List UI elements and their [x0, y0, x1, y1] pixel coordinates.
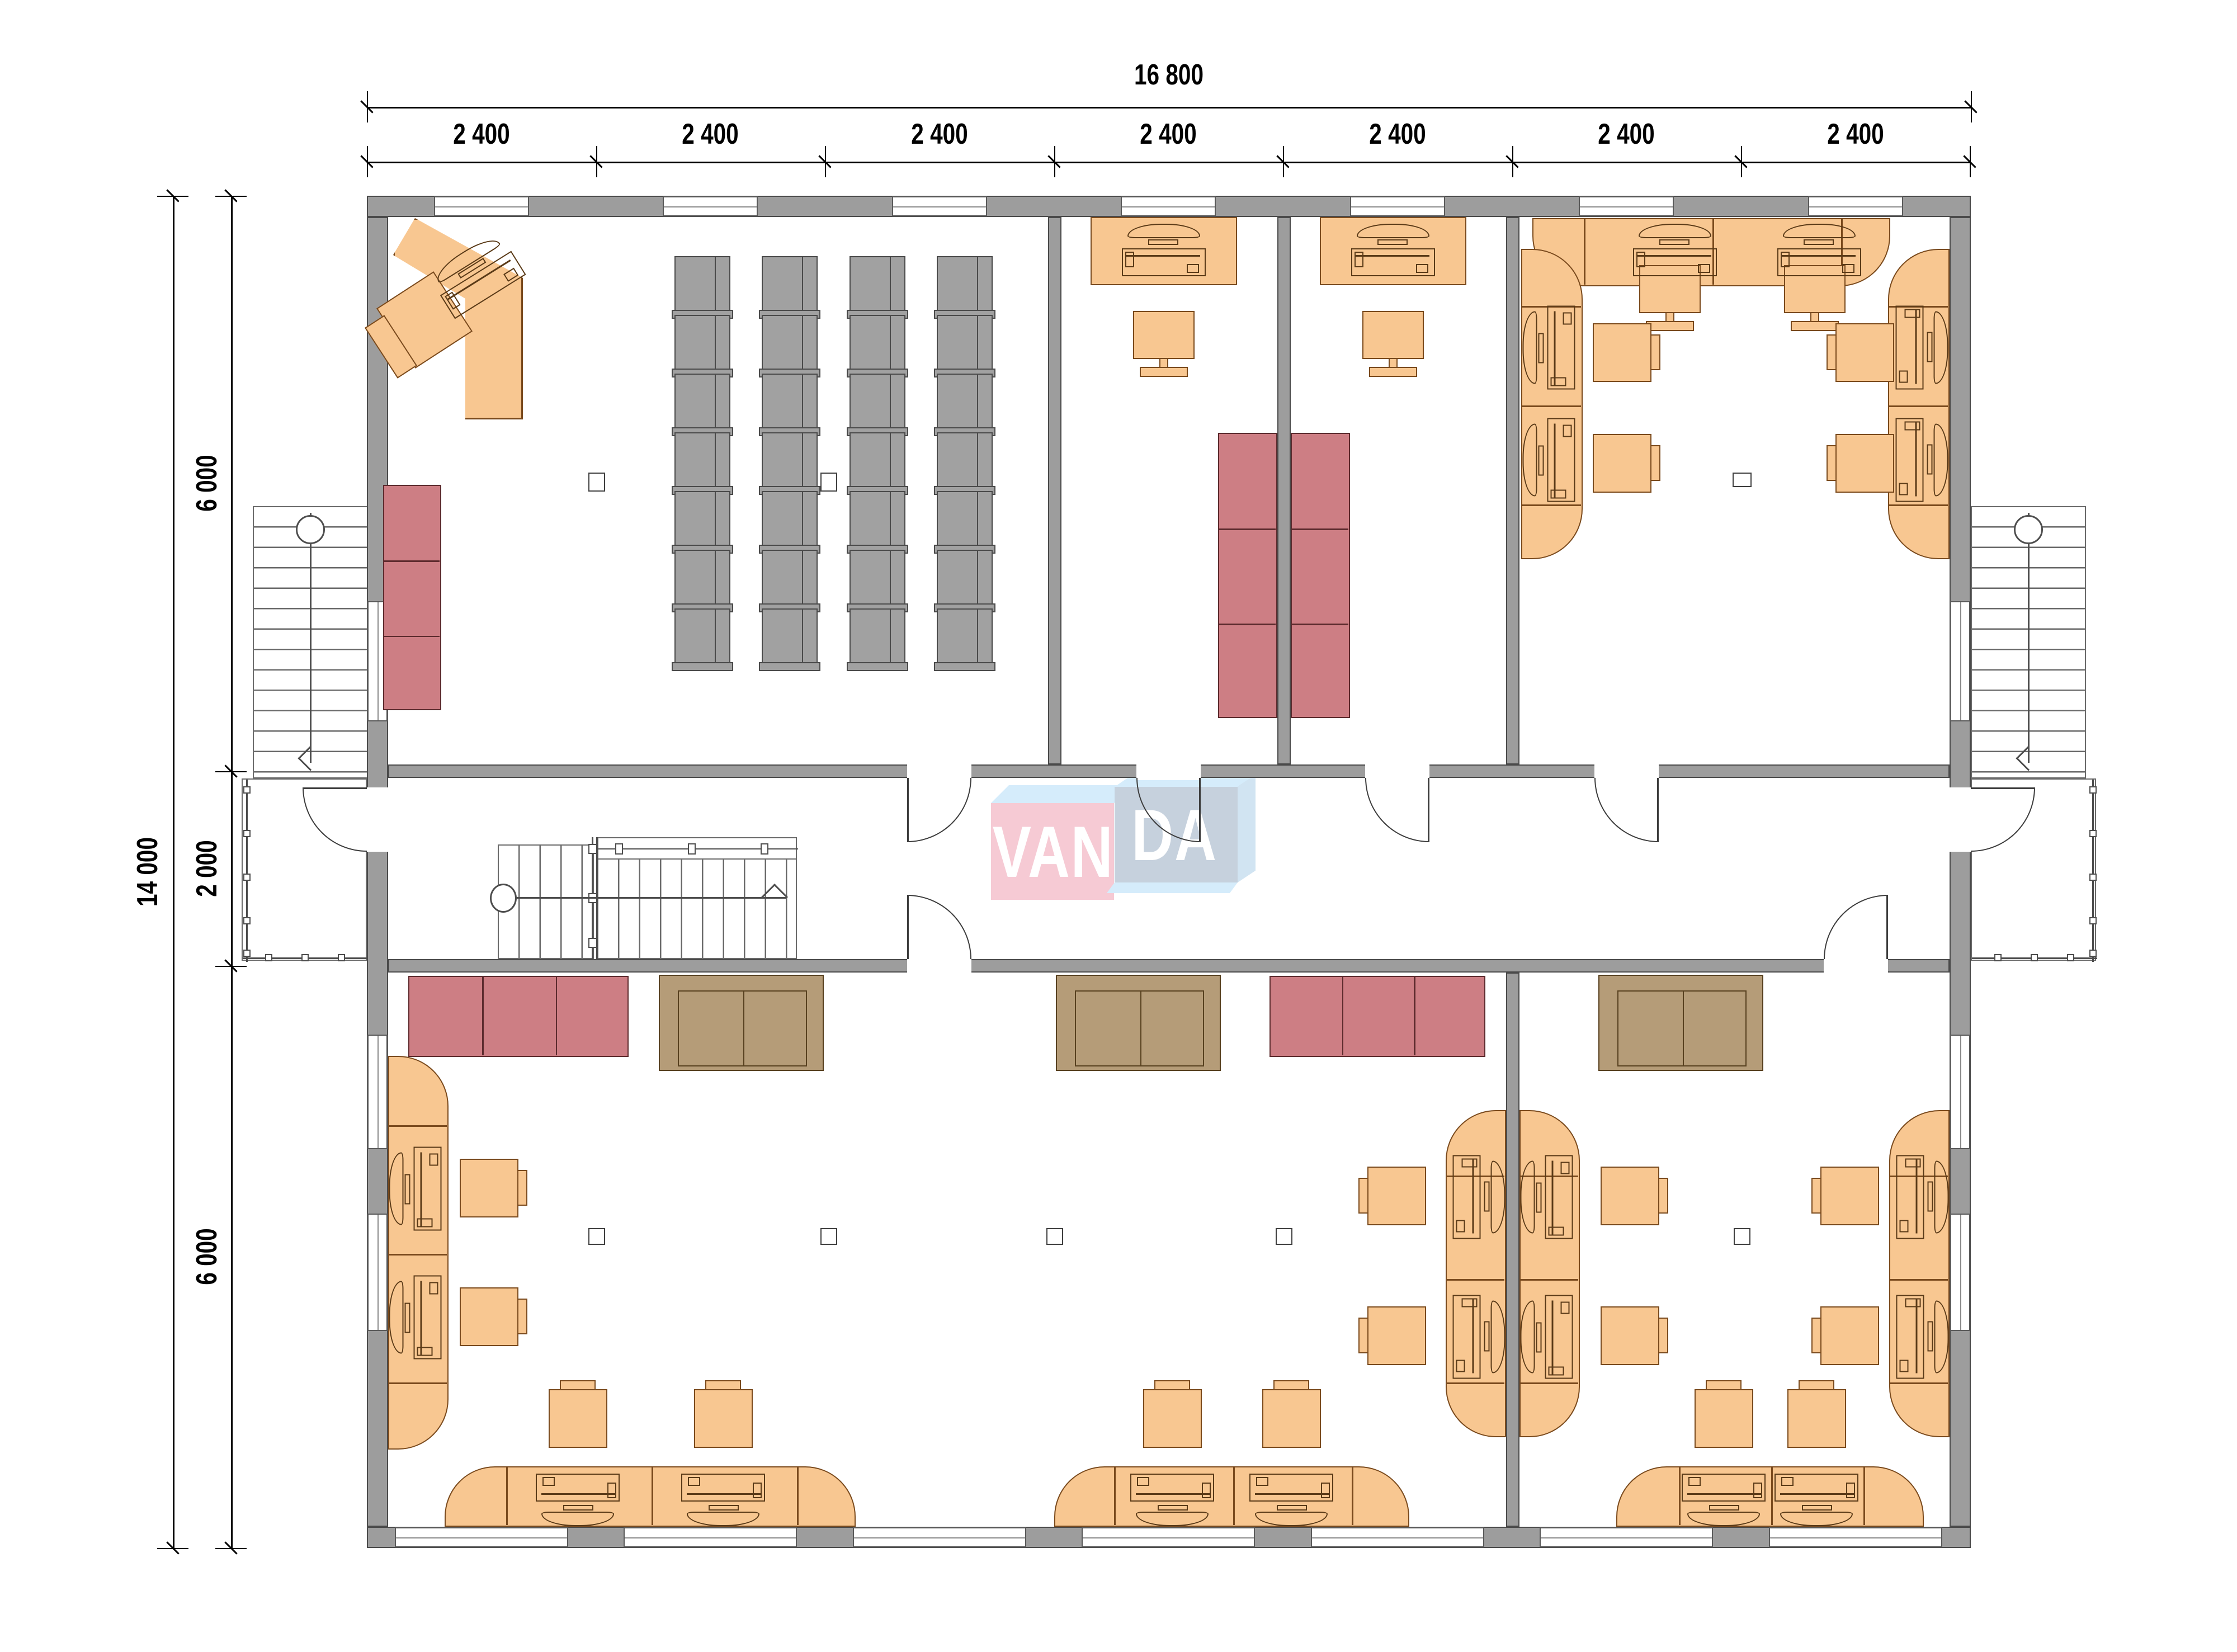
- cabinet-divider: [1342, 977, 1344, 1055]
- keyboard-keys-icon: [1552, 1301, 1554, 1375]
- chair-seat: [1601, 1167, 1659, 1225]
- window-glazing: [893, 206, 986, 207]
- monitor-stand-icon: [1277, 1505, 1307, 1511]
- keyboard-keys-icon: [1780, 1493, 1854, 1495]
- chair-seat: [762, 374, 818, 428]
- cabinet: [408, 976, 629, 1057]
- chair-arm-line: [890, 316, 891, 369]
- door-arc: [907, 778, 971, 842]
- system-unit-icon: [1905, 1299, 1921, 1308]
- computer-workstation: [1447, 1155, 1506, 1239]
- monitor-stand-icon: [1484, 1182, 1490, 1212]
- stair-start-circle: [2014, 515, 2043, 544]
- sofa-cushions: [1617, 990, 1747, 1066]
- window: [1950, 1214, 1970, 1331]
- chair-seat: [1835, 434, 1894, 493]
- door-arc: [1971, 787, 2035, 852]
- mouse-icon: [1416, 264, 1428, 273]
- office-chair: [460, 1159, 527, 1226]
- window-glazing: [1809, 206, 1902, 207]
- chair-arm-line: [802, 551, 803, 603]
- keyboard-keys-icon: [541, 1493, 615, 1495]
- classroom-chair: [937, 256, 1002, 321]
- monitor-stand-icon: [1538, 446, 1544, 476]
- railing-post: [243, 830, 251, 837]
- chair-seat: [1133, 311, 1195, 359]
- mouse-icon: [688, 1477, 700, 1486]
- chair-base: [1140, 367, 1188, 377]
- chair-arm-line: [977, 433, 978, 486]
- mouse-icon: [1900, 1360, 1909, 1372]
- classroom-chair: [674, 550, 739, 615]
- chair-seat: [937, 550, 993, 605]
- railing-post: [301, 954, 309, 961]
- window: [434, 196, 529, 216]
- railing-post: [243, 950, 251, 957]
- dimension-line: [173, 196, 174, 1548]
- chair-seat: [762, 491, 818, 546]
- monitor-stand-icon: [1927, 332, 1933, 362]
- door-leaf: [1657, 778, 1659, 842]
- classroom-chair: [762, 315, 827, 380]
- sofa-cushions: [678, 990, 807, 1066]
- monitor-icon: [1934, 424, 1948, 497]
- keyboard-keys-icon: [1916, 1160, 1918, 1234]
- office-chair: [1695, 1380, 1762, 1448]
- classroom-chair: [674, 432, 739, 497]
- desk-divider: [1863, 1467, 1865, 1525]
- system-unit-icon: [607, 1483, 616, 1498]
- chair-arm-line: [715, 316, 716, 369]
- monitor-icon: [1127, 224, 1200, 238]
- stair-flight-upper: [597, 858, 797, 959]
- desk-divider: [797, 1467, 799, 1525]
- monitor-icon: [1934, 1161, 1949, 1234]
- chair-seat: [1787, 1389, 1846, 1448]
- logo-text-left: VAN: [993, 810, 1114, 894]
- monitor-stand-icon: [1536, 1323, 1542, 1353]
- window: [1808, 196, 1903, 216]
- computer-workstation: [1521, 1155, 1579, 1239]
- keyboard-keys-icon: [1356, 255, 1429, 257]
- window-glazing: [1083, 1537, 1254, 1538]
- office-chair: [694, 1380, 762, 1448]
- system-unit-icon: [753, 1483, 762, 1498]
- chair-seat: [674, 315, 730, 370]
- chair-arm-line: [977, 610, 978, 662]
- computer-workstation: [1775, 1467, 1858, 1526]
- railing-post: [761, 843, 768, 855]
- railing-post: [688, 843, 696, 855]
- keyboard-keys-icon: [1782, 255, 1856, 257]
- chair-arm-line: [890, 551, 891, 603]
- window: [1769, 1527, 1942, 1547]
- chair-seat: [850, 608, 905, 663]
- chair-seat: [937, 256, 993, 311]
- desk-divider: [1114, 1467, 1116, 1525]
- mouse-icon: [1899, 483, 1908, 495]
- chair-seat: [762, 256, 818, 311]
- monitor-stand-icon: [1536, 1183, 1542, 1213]
- sofa: [659, 975, 824, 1071]
- dimension-label: 16 800: [1134, 58, 1204, 92]
- window: [663, 196, 758, 216]
- desk-divider: [506, 1467, 508, 1525]
- mouse-icon: [1561, 1302, 1570, 1314]
- computer-workstation: [536, 1467, 620, 1526]
- chair-back-bar: [672, 662, 733, 671]
- mouse-icon: [1563, 425, 1572, 437]
- cabinet: [1218, 433, 1277, 718]
- chair-back: [1650, 334, 1660, 370]
- classroom-chair: [937, 374, 1002, 438]
- door-opening: [1824, 957, 1888, 975]
- cabinet-divider: [1414, 977, 1415, 1055]
- chair-seat: [674, 550, 730, 605]
- monitor-icon: [1687, 1512, 1760, 1526]
- classroom-chair: [937, 432, 1002, 497]
- sofa-cushion-divider: [1140, 992, 1142, 1065]
- door-leaf: [1428, 778, 1429, 842]
- mouse-icon: [1900, 1220, 1909, 1233]
- mouse-icon: [1842, 264, 1854, 273]
- structural-column: [1733, 473, 1752, 487]
- chair-arm-line: [802, 375, 803, 427]
- window-glazing: [1312, 1537, 1483, 1538]
- desk-divider: [1521, 1382, 1578, 1384]
- system-unit-icon: [1636, 252, 1645, 267]
- monitor-stand-icon: [1804, 239, 1834, 245]
- monitor-stand-icon: [1538, 333, 1544, 364]
- system-unit-icon: [1905, 309, 1920, 318]
- chair-seat: [1601, 1306, 1659, 1365]
- window-glazing: [1960, 602, 1961, 720]
- chair-arm-line: [715, 551, 716, 603]
- chair-seat: [937, 608, 993, 663]
- chair-seat: [937, 491, 993, 546]
- door-opening: [907, 957, 971, 975]
- door-arc: [907, 895, 971, 959]
- wall: [1506, 217, 1519, 764]
- desk-divider: [1233, 1467, 1235, 1525]
- chair-seat: [1820, 1167, 1879, 1225]
- classroom-chair: [674, 608, 739, 673]
- computer-workstation: [1447, 1295, 1506, 1379]
- chair-seat: [674, 432, 730, 487]
- keyboard-keys-icon: [1916, 1300, 1918, 1373]
- dimension-line: [367, 107, 1971, 108]
- window: [1121, 196, 1216, 216]
- desk: [445, 1466, 856, 1527]
- chair-arm-line: [715, 433, 716, 486]
- wall: [388, 959, 1950, 973]
- window: [1311, 1527, 1484, 1547]
- railing-post: [588, 844, 597, 854]
- window-glazing: [1960, 1036, 1961, 1148]
- system-unit-icon: [1202, 1483, 1211, 1498]
- chair-seat: [937, 374, 993, 428]
- cabinet-divider: [384, 636, 440, 638]
- classroom-chair: [850, 432, 914, 497]
- desk-divider: [1890, 1382, 1948, 1384]
- mouse-icon: [1137, 1477, 1149, 1486]
- desk-divider: [1679, 1467, 1681, 1525]
- keyboard-keys-icon: [687, 1493, 761, 1495]
- system-unit-icon: [1355, 252, 1363, 267]
- railing-post: [243, 874, 251, 881]
- logo-bevel: [991, 785, 1132, 803]
- desk: [1054, 1466, 1409, 1527]
- monitor-stand-icon: [405, 1174, 410, 1205]
- window: [367, 1035, 388, 1149]
- structural-column: [820, 473, 837, 492]
- chair-seat: [850, 432, 905, 487]
- monitor-icon: [1521, 1301, 1535, 1373]
- sofa: [1598, 975, 1763, 1071]
- cabinet-divider: [1219, 528, 1276, 530]
- door-swing: [1365, 778, 1429, 842]
- monitor-stand-icon: [1928, 1182, 1933, 1212]
- desk-divider: [1584, 219, 1585, 285]
- window: [853, 1527, 1026, 1547]
- desk-divider: [389, 1125, 447, 1127]
- monitor-stand-icon: [1802, 1505, 1832, 1511]
- office-chair: [1827, 323, 1894, 391]
- cabinet-divider: [1219, 624, 1276, 625]
- stair-start-circle: [296, 515, 325, 544]
- dimension-label: 14 000: [131, 837, 164, 907]
- office-chair: [460, 1287, 527, 1355]
- monitor-stand-icon: [1659, 239, 1689, 245]
- dimension-label: 6 000: [190, 1228, 224, 1285]
- computer-workstation: [1890, 418, 1948, 502]
- chair-back: [1650, 445, 1660, 481]
- door-swing: [1824, 895, 1888, 959]
- chair-seat: [762, 550, 818, 605]
- chair-seat: [1835, 323, 1894, 382]
- computer-workstation: [1122, 224, 1206, 282]
- chair-seat: [762, 432, 818, 487]
- chair-seat: [1820, 1306, 1879, 1365]
- system-unit-icon: [417, 1347, 433, 1356]
- cabinet: [1291, 433, 1350, 718]
- window-glazing: [1541, 1537, 1712, 1538]
- classroom-chair: [937, 608, 1002, 673]
- monitor-stand-icon: [1709, 1505, 1739, 1511]
- cabinet: [1269, 976, 1485, 1057]
- window-glazing: [377, 1215, 379, 1330]
- chair-back-bar: [759, 662, 820, 671]
- cabinet: [383, 485, 441, 710]
- railing-post: [2031, 954, 2038, 961]
- monitor-stand-icon: [1927, 445, 1933, 475]
- railing-post: [2067, 954, 2074, 961]
- computer-workstation: [1682, 1467, 1766, 1526]
- computer-workstation: [1130, 1467, 1214, 1526]
- desk-divider: [652, 1467, 653, 1525]
- chair-arm-line: [977, 257, 978, 310]
- computer-workstation: [1890, 1155, 1949, 1239]
- office-chair: [1593, 434, 1660, 502]
- monitor-icon: [1934, 1301, 1949, 1373]
- classroom-chair: [762, 374, 827, 438]
- chair-seat: [674, 374, 730, 428]
- desk: [1616, 1466, 1924, 1527]
- desk-divider: [389, 1254, 447, 1255]
- window-glazing: [377, 1036, 379, 1148]
- dimension-label: 2 400: [682, 117, 739, 151]
- monitor-stand-icon: [1928, 1321, 1933, 1352]
- mouse-icon: [1187, 264, 1199, 273]
- system-unit-icon: [417, 1219, 433, 1228]
- structural-column: [1276, 1228, 1292, 1245]
- window-glazing: [435, 206, 528, 207]
- dimension-label: 2 000: [190, 840, 224, 897]
- chair-back-bar: [934, 662, 995, 671]
- window: [1540, 1527, 1713, 1547]
- window: [624, 1527, 797, 1547]
- chair-seat: [549, 1389, 607, 1448]
- mouse-icon: [430, 1154, 438, 1166]
- door-swing: [1971, 787, 2035, 852]
- monitor-stand-icon: [1158, 1505, 1188, 1511]
- monitor-icon: [1491, 1161, 1506, 1234]
- monitor-icon: [1357, 224, 1429, 238]
- chair-arm-line: [890, 433, 891, 486]
- chair-seat: [850, 374, 905, 428]
- chair-back: [1658, 1178, 1668, 1214]
- monitor-stand-icon: [405, 1303, 410, 1333]
- railing-post: [2089, 830, 2097, 837]
- interior-stairs: [487, 809, 811, 960]
- logo-bevel: [1238, 775, 1256, 882]
- window: [367, 1214, 388, 1331]
- computer-workstation: [1890, 306, 1948, 390]
- chair-seat: [937, 315, 993, 370]
- chair-arm-line: [977, 551, 978, 603]
- dimension-label: 2 400: [1140, 117, 1197, 151]
- railing-post: [338, 954, 345, 961]
- chair-arm-line: [977, 492, 978, 545]
- system-unit-icon: [1846, 1483, 1855, 1498]
- cabinet-divider: [1292, 624, 1348, 625]
- monitor-icon: [1783, 224, 1856, 238]
- mouse-icon: [1698, 264, 1710, 273]
- chair-seat: [850, 315, 905, 370]
- computer-workstation: [1521, 1295, 1579, 1379]
- door-opening: [1947, 787, 1973, 852]
- chair-arm-line: [802, 316, 803, 369]
- door-swing: [303, 787, 367, 852]
- monitor-icon: [389, 1281, 404, 1354]
- monitor-icon: [389, 1153, 404, 1225]
- structural-column: [1046, 1228, 1063, 1245]
- monitor-icon: [687, 1512, 759, 1526]
- dimension-line: [367, 162, 1971, 163]
- mouse-icon: [542, 1477, 555, 1486]
- computer-workstation: [1351, 224, 1435, 282]
- railing-post: [265, 954, 272, 961]
- stair-start-circle: [490, 884, 517, 913]
- railing-post: [615, 843, 623, 855]
- chair-seat: [937, 432, 993, 487]
- mouse-icon: [1256, 1477, 1268, 1486]
- chair-arm-line: [890, 492, 891, 545]
- computer-workstation: [389, 1276, 448, 1360]
- desk-divider: [389, 1382, 447, 1384]
- monitor-icon: [1639, 224, 1711, 238]
- monitor-icon: [1491, 1301, 1506, 1373]
- door-arc: [1594, 778, 1659, 842]
- railing-post: [1994, 954, 2002, 961]
- office-chair: [549, 1380, 616, 1448]
- chair-seat: [1695, 1389, 1753, 1448]
- desk-divider: [1890, 1279, 1948, 1281]
- desk-divider: [1352, 1467, 1353, 1525]
- chair-base: [1369, 367, 1417, 377]
- window-glazing: [1122, 206, 1215, 207]
- monitor-icon: [1523, 311, 1537, 384]
- classroom-chair: [850, 374, 914, 438]
- door-leaf: [1971, 787, 2035, 789]
- window: [1082, 1527, 1255, 1547]
- chair-arm-line: [802, 610, 803, 662]
- chair-seat: [1593, 434, 1651, 493]
- door-leaf: [1886, 895, 1888, 959]
- sofa-cushion-divider: [743, 992, 745, 1065]
- chair-seat: [1262, 1389, 1321, 1448]
- chair-seat: [694, 1389, 753, 1448]
- keyboard-keys-icon: [1554, 311, 1556, 385]
- stair-top-landing: [597, 837, 797, 860]
- structural-column: [1734, 1228, 1750, 1245]
- chair-seat: [1143, 1389, 1202, 1448]
- window: [1579, 196, 1674, 216]
- mouse-icon: [1781, 1477, 1794, 1486]
- exterior-stairs: [253, 506, 368, 778]
- railing-post: [2089, 874, 2097, 881]
- cabinet-divider: [1292, 528, 1348, 530]
- stair-rail: [2028, 513, 2030, 763]
- chair-seat: [460, 1159, 518, 1217]
- door-swing: [907, 778, 971, 842]
- chair-arm-line: [802, 257, 803, 310]
- classroom-chair: [674, 491, 739, 556]
- classroom-chair: [937, 491, 1002, 556]
- chair-seat: [850, 550, 905, 605]
- chair-arm-line: [715, 492, 716, 545]
- chair-back: [1658, 1318, 1668, 1353]
- chair-seat: [1367, 1306, 1426, 1365]
- window-glazing: [1770, 1537, 1941, 1538]
- desk-divider: [1889, 405, 1948, 407]
- system-unit-icon: [1321, 1483, 1330, 1498]
- system-unit-icon: [1905, 422, 1920, 431]
- monitor-icon: [1521, 1161, 1535, 1234]
- structural-column: [588, 473, 605, 492]
- desk-divider: [1447, 1382, 1504, 1384]
- dimension-label: 2 400: [1369, 117, 1426, 151]
- door-opening: [365, 787, 390, 852]
- cabinet-divider: [556, 977, 558, 1055]
- chair-seat: [674, 491, 730, 546]
- dimension-label: 2 400: [1827, 117, 1884, 151]
- computer-workstation: [1890, 1295, 1949, 1379]
- office-chair: [1133, 311, 1195, 381]
- vanda-watermark: VANDA: [984, 772, 1264, 900]
- keyboard-keys-icon: [1915, 423, 1917, 497]
- system-unit-icon: [1125, 252, 1134, 267]
